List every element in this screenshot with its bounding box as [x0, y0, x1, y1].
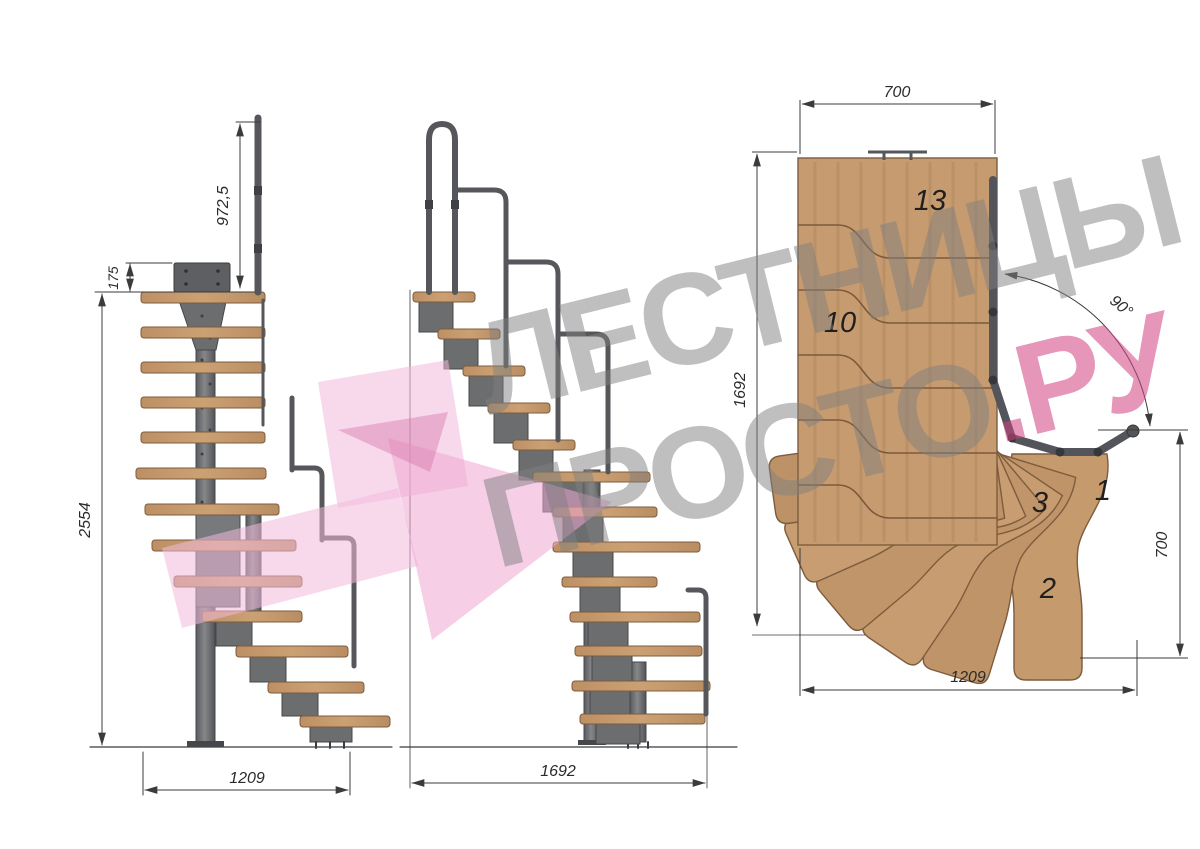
dim-front-width: 1209 [229, 770, 265, 787]
dim-side-length: 1692 [540, 763, 576, 780]
dim-plan-bottom-length: 1209 [950, 669, 986, 686]
rail-joint [254, 244, 262, 253]
step-label-1: 1 [1095, 475, 1111, 507]
plan-handrail [989, 180, 1140, 457]
rail-joint [451, 200, 459, 209]
step-label-3: 3 [1032, 487, 1048, 519]
dim-plate-offset: 175 [105, 266, 121, 290]
dim-total-height: 2554 [77, 502, 94, 539]
plan-upper-flight [798, 158, 997, 545]
technical-drawing-canvas: 972,5 175 2554 1209 [0, 0, 1200, 849]
top-mount-plate [174, 263, 230, 292]
rail-joint [254, 186, 262, 195]
step-label-13: 13 [914, 185, 946, 217]
dim-rail-height: 972,5 [215, 186, 232, 226]
dim-plan-left-length: 1692 [732, 372, 749, 408]
step-label-2: 2 [1039, 573, 1056, 605]
side-handrail [429, 124, 706, 714]
dim-plan-angle: 90° [1106, 292, 1136, 321]
step-label-10: 10 [824, 307, 856, 339]
dim-plan-top-width: 700 [884, 84, 911, 101]
dim-plan-right-width: 700 [1154, 532, 1171, 559]
rail-joint [425, 200, 433, 209]
staircase-drawing-page: 972,5 175 2554 1209 [0, 0, 1200, 849]
plan-view: 13 10 3 2 1 700 1692 90° 700 1209 [732, 84, 1188, 696]
